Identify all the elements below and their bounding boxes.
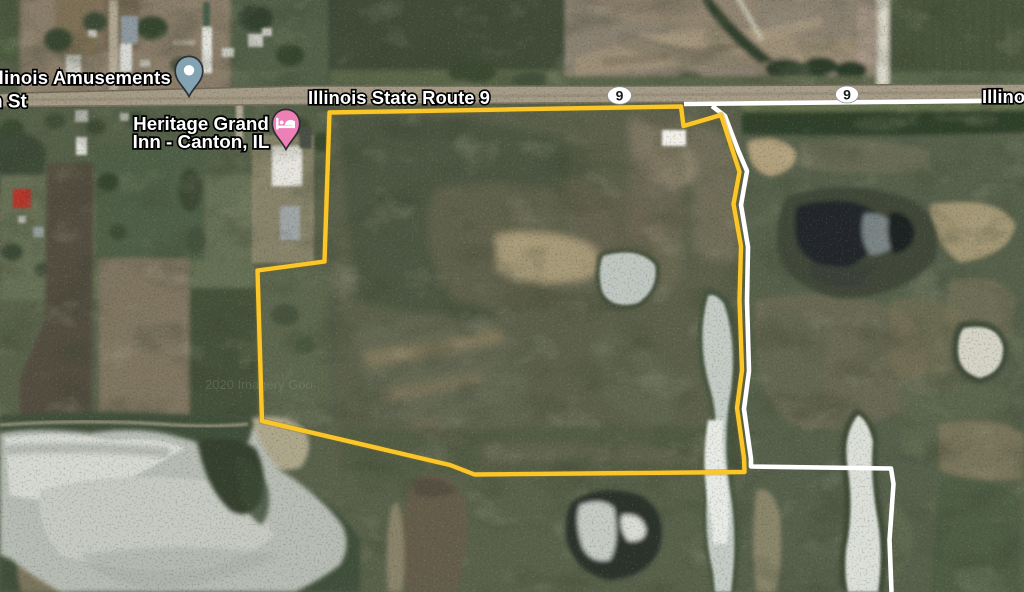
svg-text:Illinois Amusements: Illinois Amusements: [0, 67, 171, 88]
svg-text:9: 9: [616, 88, 624, 104]
svg-text:9: 9: [843, 87, 851, 103]
svg-text:Inn - Canton, IL: Inn - Canton, IL: [133, 131, 270, 152]
svg-text:Illinois State Route 9: Illinois State Route 9: [308, 87, 490, 108]
svg-text:n St: n St: [0, 92, 28, 113]
svg-text:Illinois: Illinois: [982, 86, 1024, 107]
